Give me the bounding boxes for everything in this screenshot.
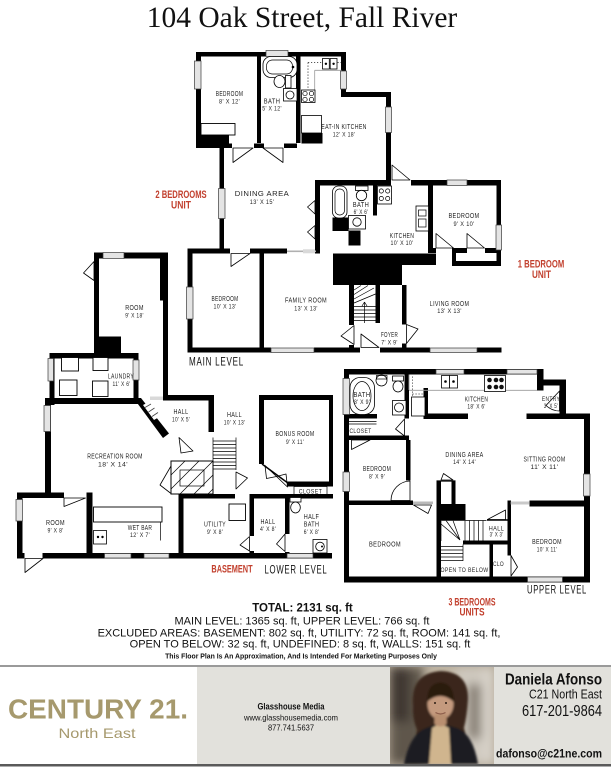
svg-text:BATH: BATH [264,97,281,106]
svg-text:MAIN LEVEL: 1365 sq. ft, UPPER: MAIN LEVEL: 1365 sq. ft, UPPER LEVEL: 76… [175,616,430,628]
svg-text:10' X 13': 10' X 13' [214,304,237,311]
svg-text:11' X 6': 11' X 6' [113,381,131,388]
svg-text:CLOSET: CLOSET [349,428,371,435]
svg-text:OPEN TO BELOW: 32 sq. ft, UNDE: OPEN TO BELOW: 32 sq. ft, UNDEFINED: 8 s… [130,639,471,651]
svg-text:OPEN TO BELOW: OPEN TO BELOW [441,567,489,574]
svg-text:BEDROOM: BEDROOM [449,211,480,220]
svg-text:www.glasshousemedia.com: www.glasshousemedia.com [243,713,338,723]
svg-text:13' X 15': 13' X 15' [250,199,275,206]
svg-text:KITCHEN: KITCHEN [390,231,415,240]
svg-text:13' X 13': 13' X 13' [294,306,318,313]
svg-text:BONUS ROOM: BONUS ROOM [276,429,315,438]
svg-text:BATH: BATH [353,390,370,399]
svg-text:11' X 11': 11' X 11' [531,464,559,471]
svg-text:SITTING ROOM: SITTING ROOM [524,455,566,464]
svg-text:8' X 9': 8' X 9' [369,474,385,481]
svg-text:3' X 5': 3' X 5' [544,403,558,410]
svg-text:UPPER LEVEL: UPPER LEVEL [527,583,587,597]
svg-text:CLOSET: CLOSET [299,489,323,496]
svg-text:10' X 10': 10' X 10' [391,240,414,247]
svg-text:12' X 18': 12' X 18' [333,132,356,139]
svg-text:UNIT: UNIT [532,269,551,281]
svg-text:4' X 8': 4' X 8' [260,526,276,533]
svg-text:DINING AREA: DINING AREA [445,450,483,459]
svg-text:617-201-9864: 617-201-9864 [522,703,602,720]
svg-text:14' X 14': 14' X 14' [453,459,476,466]
svg-text:10' X 13': 10' X 13' [224,420,246,427]
svg-text:877.741.5637: 877.741.5637 [268,723,314,733]
svg-text:LIVING ROOM: LIVING ROOM [430,299,470,308]
svg-text:6' X 8': 6' X 8' [304,529,320,536]
svg-text:3' X 3': 3' X 3' [490,532,504,539]
svg-text:HALL: HALL [174,407,189,416]
svg-text:CENTURY 21.: CENTURY 21. [8,694,188,725]
svg-text:HALL: HALL [227,410,242,419]
svg-text:MAIN LEVEL: MAIN LEVEL [189,355,244,369]
svg-text:FOYER: FOYER [381,330,398,339]
svg-text:13' X 13': 13' X 13' [437,308,462,315]
svg-text:9' X 8': 9' X 8' [48,528,64,535]
svg-text:BEDROOM: BEDROOM [216,89,244,98]
svg-text:ROOM: ROOM [46,518,65,527]
svg-text:10' X 5': 10' X 5' [172,417,190,424]
svg-text:104 Oak Street, Fall River: 104 Oak Street, Fall River [147,2,458,34]
svg-text:9' X 10': 9' X 10' [454,221,475,228]
svg-text:DINING AREA: DINING AREA [235,189,290,198]
svg-text:WET BAR: WET BAR [128,523,153,532]
svg-text:RECREATION ROOM: RECREATION ROOM [87,452,143,461]
svg-text:CLO: CLO [493,561,504,568]
svg-text:ROOM: ROOM [125,303,144,312]
svg-text:TOTAL: 2131 sq. ft: TOTAL: 2131 sq. ft [252,603,353,615]
svg-text:LAUNDRY: LAUNDRY [108,372,134,381]
svg-text:8' X 12': 8' X 12' [219,99,240,106]
svg-text:12' X 7': 12' X 7' [130,532,150,539]
svg-text:8' X 9': 8' X 9' [354,399,370,406]
svg-text:C21 North East: C21 North East [529,687,602,702]
svg-text:7' X 9': 7' X 9' [381,340,398,347]
svg-text:BEDROOM: BEDROOM [369,540,401,549]
svg-text:18' X 14': 18' X 14' [98,462,128,469]
svg-text:EAT-IN KITCHEN: EAT-IN KITCHEN [321,122,367,131]
svg-text:BASEMENT: BASEMENT [211,564,252,576]
svg-text:ENTRY: ENTRY [542,396,561,403]
svg-text:This Floor Plan Is An Approxim: This Floor Plan Is An Approximation, And… [165,654,437,661]
svg-text:LOWER LEVEL: LOWER LEVEL [265,563,328,577]
svg-text:BEDROOM: BEDROOM [532,537,562,546]
svg-text:10' X 11': 10' X 11' [537,547,558,554]
svg-text:6' X 6': 6' X 6' [354,209,369,216]
svg-text:BATH: BATH [353,200,369,209]
svg-text:BEDROOM: BEDROOM [212,294,239,303]
svg-text:KITCHEN: KITCHEN [465,395,489,404]
svg-text:18' X 6': 18' X 6' [467,404,485,411]
svg-text:UNIT: UNIT [171,200,191,212]
svg-text:Glasshouse Media: Glasshouse Media [258,702,325,712]
svg-text:UTILITY: UTILITY [204,520,226,529]
svg-text:5' X 12': 5' X 12' [262,106,282,113]
svg-text:9' X 18': 9' X 18' [125,313,144,320]
svg-text:dafonso@c21ne.com: dafonso@c21ne.com [496,747,602,761]
svg-text:BEDROOM: BEDROOM [363,464,391,473]
svg-text:9' X 11': 9' X 11' [286,439,304,446]
svg-text:FAMILY ROOM: FAMILY ROOM [285,296,327,305]
svg-text:HALL: HALL [261,517,276,526]
svg-text:North East: North East [59,725,136,741]
svg-text:UNITS: UNITS [460,607,485,619]
svg-text:BATH: BATH [304,520,320,529]
svg-text:9' X 8': 9' X 8' [207,529,223,536]
